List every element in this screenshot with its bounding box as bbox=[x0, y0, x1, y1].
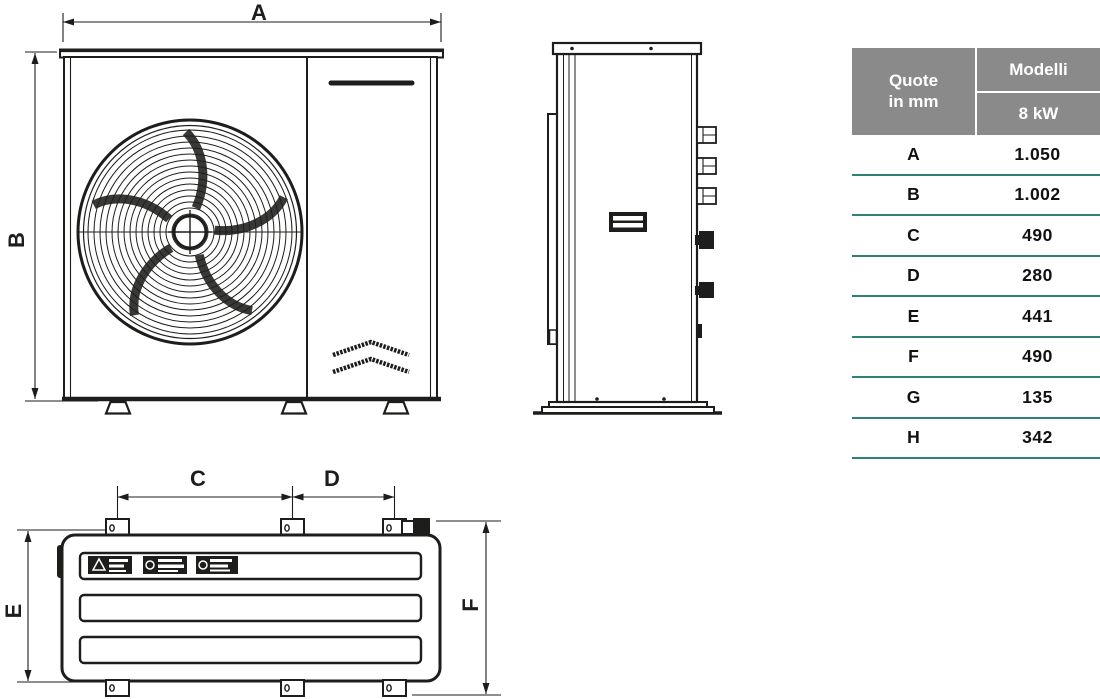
front-view bbox=[25, 13, 443, 414]
row-value: 342 bbox=[975, 427, 1100, 448]
dimension-line-c-d bbox=[118, 486, 395, 527]
table-row: E 441 bbox=[852, 297, 1100, 338]
row-label: F bbox=[852, 346, 975, 367]
side-top-cap bbox=[553, 43, 701, 54]
side-handle-icon bbox=[609, 212, 647, 232]
warning-labels bbox=[88, 556, 238, 574]
bottom-view bbox=[17, 486, 501, 696]
table-header-model-8kw: 8 kW bbox=[977, 93, 1100, 135]
dim-label-b: B bbox=[4, 225, 30, 255]
front-feet bbox=[106, 402, 408, 414]
table-header-models: Modelli 8 kW bbox=[977, 48, 1100, 135]
quote-line2: in mm bbox=[888, 92, 938, 112]
table-row: A 1.050 bbox=[852, 135, 1100, 176]
row-label: E bbox=[852, 306, 975, 327]
dim-label-c: C bbox=[183, 466, 213, 492]
row-label: H bbox=[852, 427, 975, 448]
side-view bbox=[533, 43, 722, 413]
table-row: H 342 bbox=[852, 419, 1100, 460]
dim-label-f: F bbox=[458, 590, 484, 620]
corner-connector bbox=[413, 518, 430, 535]
row-value: 135 bbox=[975, 387, 1100, 408]
fan-grille-icon bbox=[78, 120, 302, 344]
table-row: B 1.002 bbox=[852, 176, 1100, 217]
table-body: A 1.050 B 1.002 C 490 D 280 E 441 F 490 bbox=[852, 135, 1100, 459]
mounting-tabs-top bbox=[106, 518, 430, 536]
row-label: D bbox=[852, 265, 975, 286]
row-value: 490 bbox=[975, 346, 1100, 367]
dim-label-e: E bbox=[1, 596, 27, 626]
table-header-modelli: Modelli bbox=[977, 48, 1100, 91]
side-left-fin bbox=[548, 114, 557, 344]
row-label: A bbox=[852, 144, 975, 165]
table-row: G 135 bbox=[852, 378, 1100, 419]
quote-line1: Quote bbox=[889, 71, 938, 91]
table-header-quote: Quote in mm bbox=[852, 48, 975, 135]
row-value: 441 bbox=[975, 306, 1100, 327]
dim-label-a: A bbox=[244, 0, 274, 26]
side-pipe-connections bbox=[697, 127, 716, 204]
table-row: C 490 bbox=[852, 216, 1100, 257]
row-value: 1.050 bbox=[975, 144, 1100, 165]
row-value: 1.002 bbox=[975, 184, 1100, 205]
table-header: Quote in mm Modelli 8 kW bbox=[852, 48, 1100, 135]
row-value: 490 bbox=[975, 225, 1100, 246]
dimension-table: Quote in mm Modelli 8 kW A 1.050 B 1.002… bbox=[852, 48, 1100, 459]
table-row: F 490 bbox=[852, 338, 1100, 379]
dim-label-d: D bbox=[317, 466, 347, 492]
row-label: B bbox=[852, 184, 975, 205]
table-row: D 280 bbox=[852, 257, 1100, 298]
technical-drawing-page: A B C D E F Quote in mm Modelli 8 kW A 1… bbox=[0, 0, 1100, 699]
row-label: G bbox=[852, 387, 975, 408]
row-label: C bbox=[852, 225, 975, 246]
row-value: 280 bbox=[975, 265, 1100, 286]
